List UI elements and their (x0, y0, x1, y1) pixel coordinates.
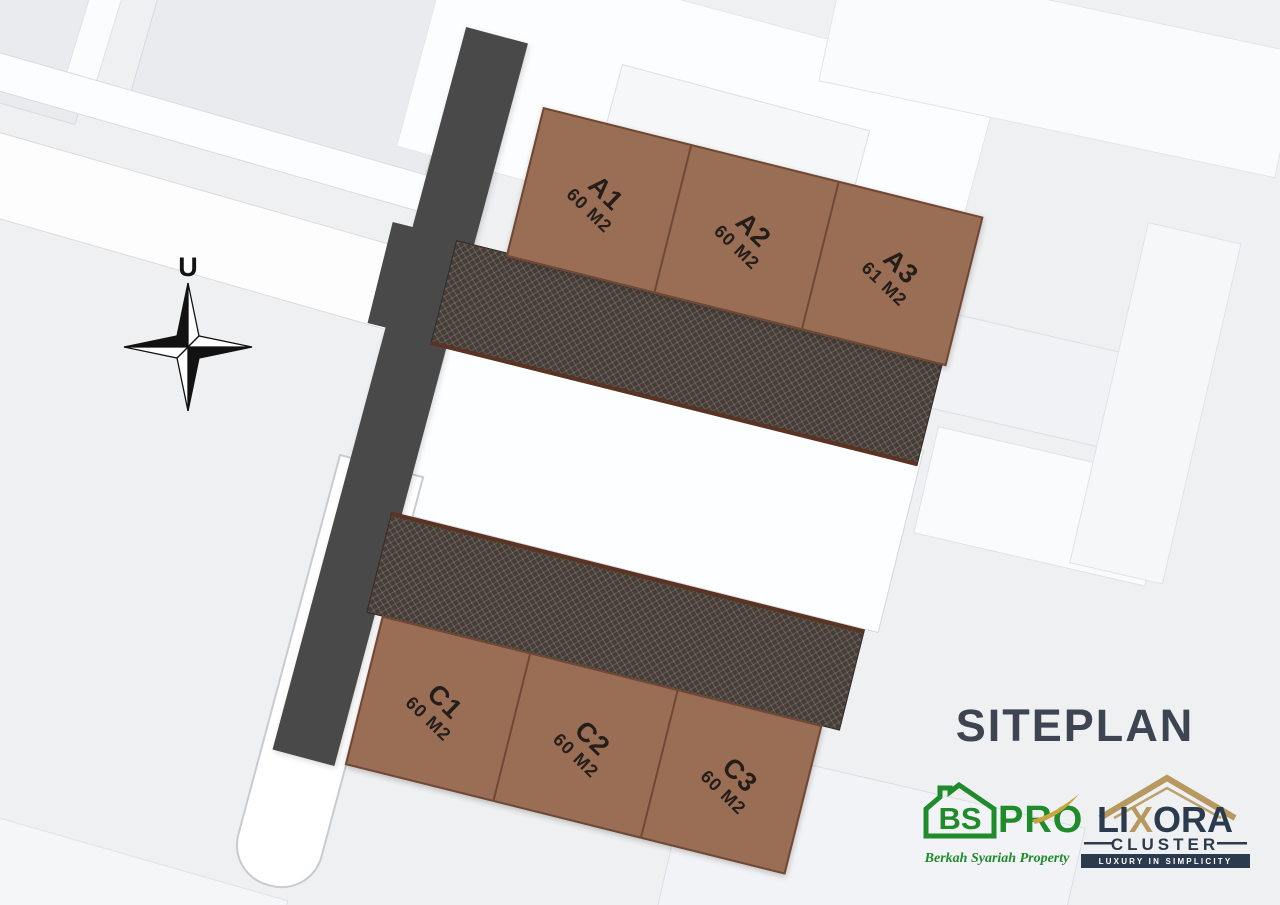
lixora-dash-left (1084, 842, 1114, 845)
lixora-post: ORA (1153, 799, 1233, 840)
lixora-sub: CLUSTER (1111, 835, 1219, 854)
compass-north-label: U (178, 252, 198, 282)
lixora-tagline: LUXURY IN SIMPLICITY (1099, 857, 1233, 866)
lixora-x: X (1129, 799, 1153, 840)
lixora-pre: LI (1097, 799, 1129, 840)
lixora-logo: LIXORA CLUSTER LUXURY IN SIMPLICITY (1078, 770, 1253, 868)
compass-star (124, 283, 252, 411)
lixora-dash-right (1217, 842, 1247, 845)
lixora-wordmark: LIXORA (1097, 799, 1233, 840)
compass-icon: U (118, 244, 258, 424)
bspro-abbr: BS (938, 801, 981, 836)
bspro-logo: BS PRO Berkah Syariah Property (912, 776, 1082, 871)
siteplan-canvas: A1 60 M2 A2 60 M2 A3 61 M2 (0, 0, 1280, 905)
bspro-tagline: Berkah Syariah Property (924, 851, 1070, 866)
page-title: SITEPLAN (940, 700, 1210, 752)
